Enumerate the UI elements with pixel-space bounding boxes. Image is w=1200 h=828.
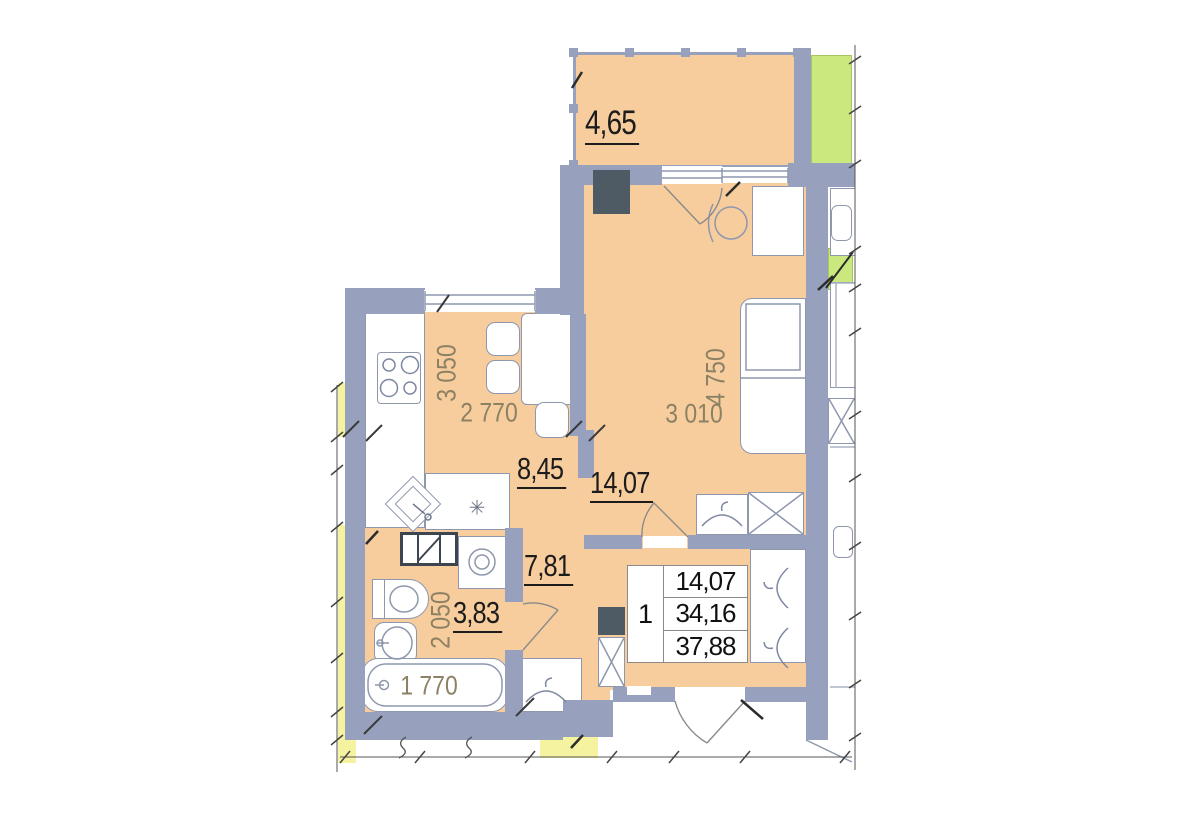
bed bbox=[740, 298, 806, 454]
wall bbox=[745, 687, 806, 702]
toilet-bowl bbox=[384, 579, 429, 619]
party-wall bbox=[806, 163, 828, 740]
wall bbox=[505, 650, 523, 716]
room-area-label: 14,07 bbox=[590, 466, 653, 503]
kitchen-window bbox=[424, 290, 536, 311]
neighbor-chair bbox=[831, 205, 852, 241]
room-door-threshold bbox=[643, 536, 687, 548]
closet-hanger bbox=[696, 494, 748, 535]
balcony-door-opening bbox=[662, 166, 722, 184]
neighbor-fixture bbox=[833, 526, 853, 558]
corridor-edge bbox=[806, 740, 852, 762]
rail-post bbox=[681, 48, 690, 57]
vent-shaft bbox=[593, 170, 630, 214]
neighbor-hatch bbox=[828, 398, 855, 444]
total-area-value: 37,88 bbox=[664, 630, 747, 662]
balcony-window bbox=[722, 167, 788, 183]
wall bbox=[563, 700, 613, 737]
apartment-area-value: 34,16 bbox=[664, 597, 747, 629]
washing-machine bbox=[458, 536, 506, 589]
wall bbox=[505, 528, 523, 602]
entrance-door-swing bbox=[675, 701, 745, 743]
vent-window-box bbox=[400, 532, 458, 566]
rail-post bbox=[569, 104, 578, 113]
entrance-opening bbox=[675, 687, 745, 703]
living-space-value: 14,07 bbox=[664, 566, 747, 597]
hall-area-label: 7,81 bbox=[524, 549, 573, 586]
floor-plan: 1 14,07 34,16 37,88 bbox=[0, 0, 1200, 828]
rail-post bbox=[569, 48, 578, 57]
wall bbox=[688, 535, 806, 549]
wall bbox=[797, 48, 811, 170]
neighbor-balcony bbox=[811, 55, 852, 165]
room-depth-dim: 4 750 bbox=[701, 348, 732, 405]
entrance-closet bbox=[750, 549, 806, 663]
rail-post bbox=[625, 48, 634, 57]
hatch-box bbox=[598, 637, 625, 687]
chair bbox=[486, 322, 520, 356]
kitchen-area-label: 8,45 bbox=[517, 452, 566, 489]
vestibule-threshold bbox=[627, 686, 651, 695]
neighbor-wardrobe bbox=[830, 282, 855, 388]
wardrobe bbox=[748, 492, 804, 535]
chair bbox=[486, 360, 520, 394]
bathtub-length-dim: 1 770 bbox=[400, 671, 457, 702]
kitchen-width-dim: 2 770 bbox=[460, 398, 517, 429]
rooms-count: 1 bbox=[628, 566, 664, 662]
vent-shaft bbox=[598, 607, 625, 635]
chair bbox=[535, 402, 569, 438]
bath-depth-dim: 2 050 bbox=[426, 591, 457, 648]
wall bbox=[584, 535, 642, 549]
balcony-area-label: 4,65 bbox=[585, 105, 639, 145]
wall bbox=[345, 712, 563, 740]
stove bbox=[377, 352, 421, 404]
wall bbox=[570, 314, 586, 436]
washer-mark-icon: ✳ bbox=[469, 496, 486, 521]
kitchen-depth-dim: 3 050 bbox=[432, 344, 463, 401]
apartment-info-table: 1 14,07 34,16 37,88 bbox=[627, 565, 748, 663]
desk bbox=[752, 186, 804, 256]
section-squiggles bbox=[399, 737, 472, 758]
insulation-strip bbox=[540, 737, 598, 758]
exterior-wall-left bbox=[345, 288, 365, 740]
rail-post bbox=[737, 48, 746, 57]
bath-area-label: 3,83 bbox=[453, 596, 502, 633]
wall bbox=[535, 288, 584, 314]
